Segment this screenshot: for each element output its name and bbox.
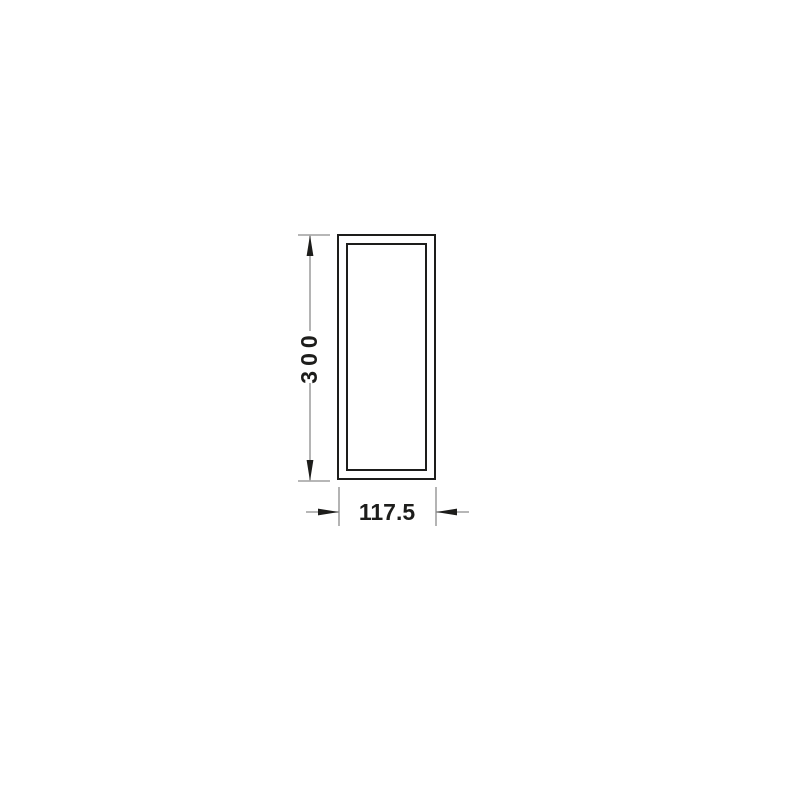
arrow-right-icon <box>318 509 339 516</box>
profile-inner-outline <box>347 244 426 470</box>
drawing-canvas: 300 117.5 <box>0 0 800 800</box>
arrow-left-icon <box>436 509 457 516</box>
arrow-down-icon <box>307 460 314 481</box>
arrow-up-icon <box>307 235 314 256</box>
profile-outer-outline <box>338 235 435 479</box>
height-dimension: 300 <box>296 235 330 481</box>
technical-drawing: 300 117.5 <box>0 0 800 800</box>
width-dimension: 117.5 <box>306 487 469 526</box>
width-dimension-label: 117.5 <box>359 499 415 525</box>
height-dimension-label: 300 <box>296 330 322 383</box>
profile-section <box>338 235 435 479</box>
